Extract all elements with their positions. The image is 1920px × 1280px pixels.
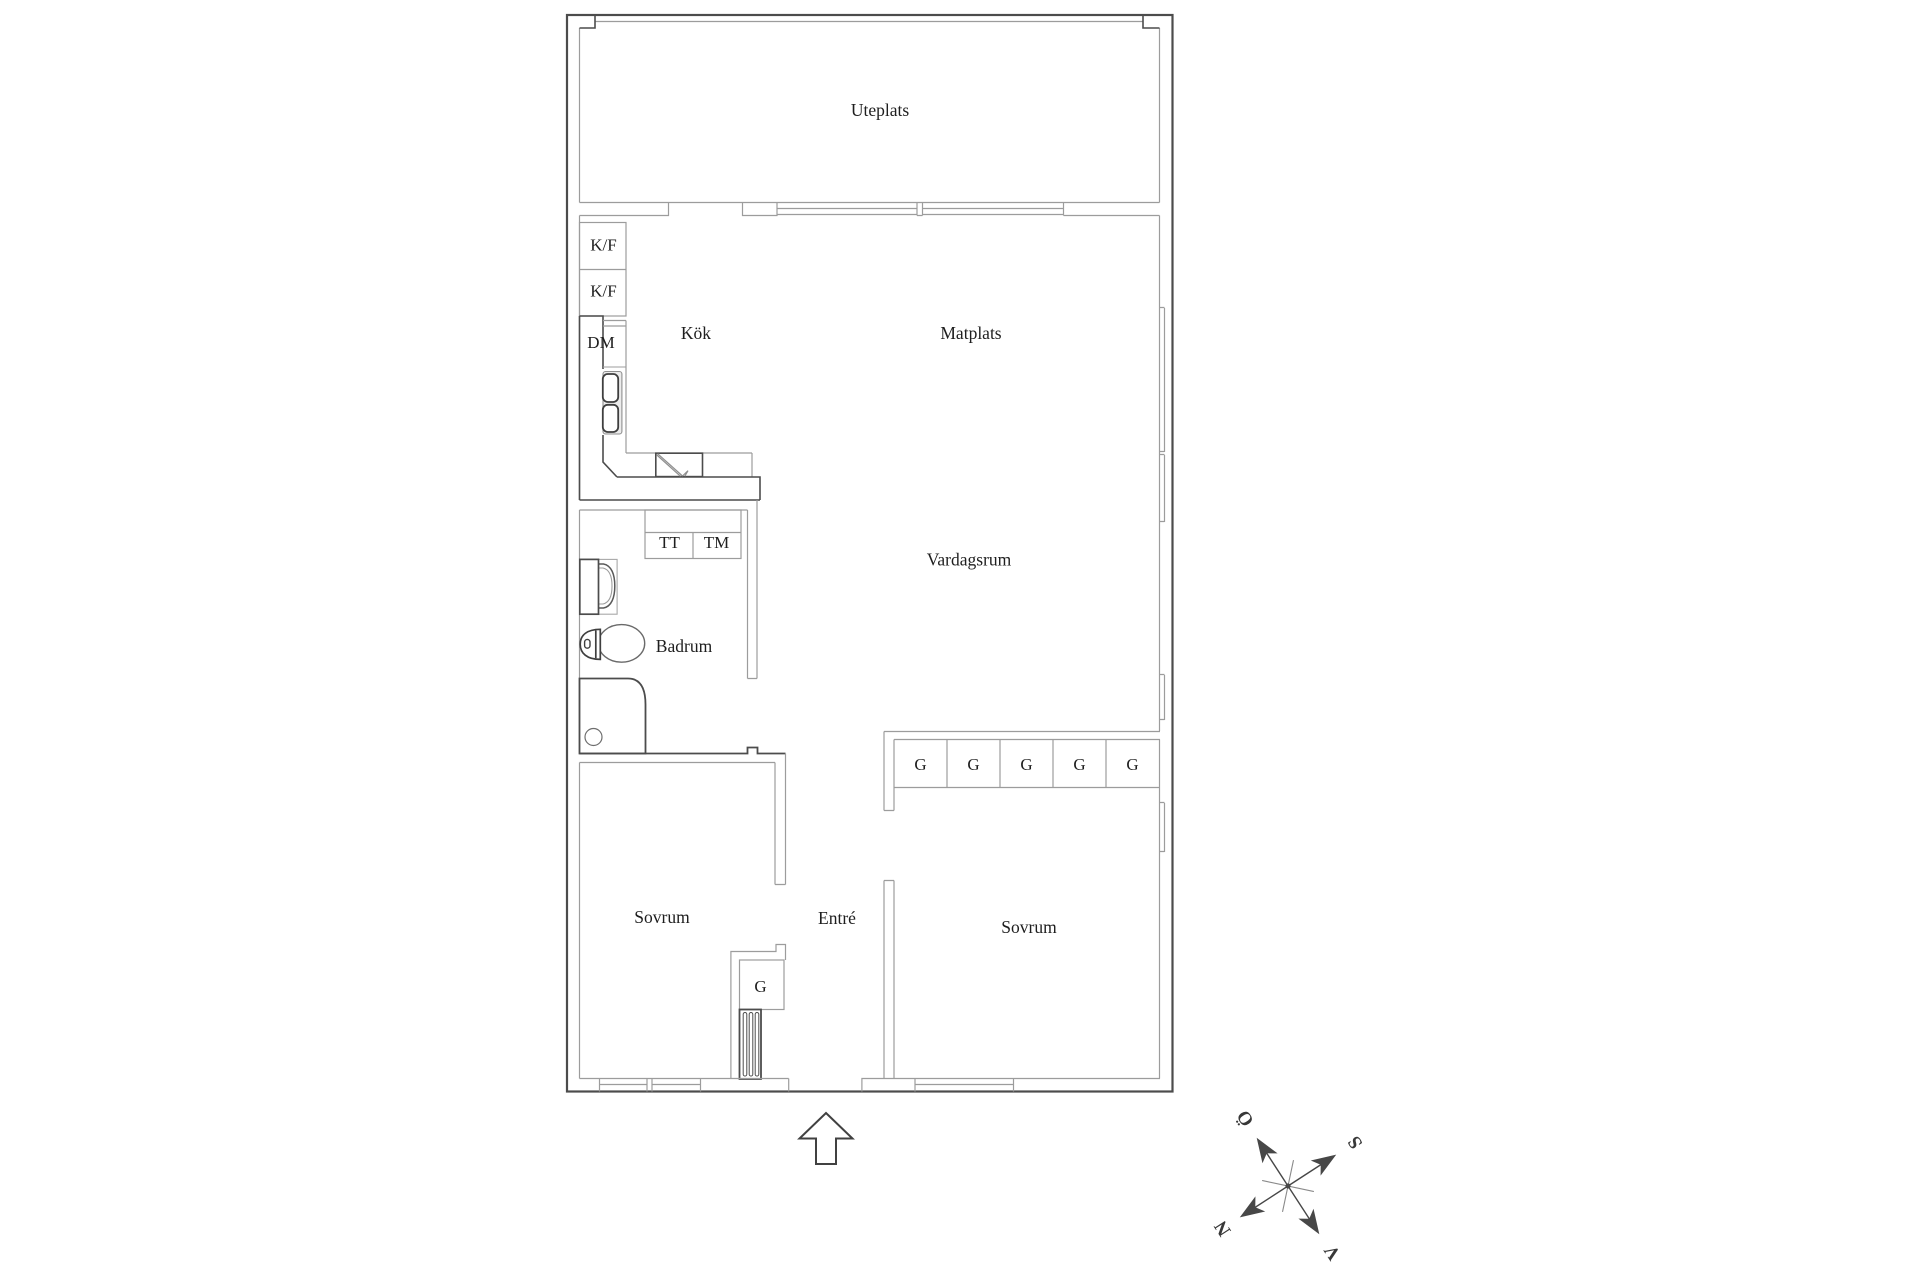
svg-text:DM: DM: [587, 333, 614, 352]
svg-text:K/F: K/F: [590, 282, 616, 301]
svg-text:G: G: [1126, 755, 1138, 774]
svg-text:V: V: [1320, 1241, 1345, 1264]
svg-text:Sovrum: Sovrum: [1001, 917, 1057, 937]
svg-text:G: G: [754, 977, 766, 996]
svg-text:TM: TM: [704, 533, 730, 552]
svg-text:Badrum: Badrum: [656, 636, 713, 656]
svg-text:Vardagsrum: Vardagsrum: [927, 550, 1012, 570]
svg-text:Uteplats: Uteplats: [851, 100, 910, 120]
svg-text:Matplats: Matplats: [940, 323, 1001, 343]
svg-text:K/F: K/F: [590, 236, 616, 255]
svg-text:TT: TT: [659, 533, 680, 552]
svg-text:G: G: [1073, 755, 1085, 774]
svg-text:Sovrum: Sovrum: [634, 907, 690, 927]
svg-text:N: N: [1210, 1217, 1235, 1240]
svg-text:Entré: Entré: [818, 908, 856, 928]
svg-text:G: G: [1020, 755, 1032, 774]
svg-text:Ö: Ö: [1233, 1106, 1259, 1130]
svg-text:G: G: [914, 755, 926, 774]
svg-text:S: S: [1344, 1132, 1367, 1152]
svg-text:G: G: [967, 755, 979, 774]
svg-text:Kök: Kök: [681, 323, 711, 343]
